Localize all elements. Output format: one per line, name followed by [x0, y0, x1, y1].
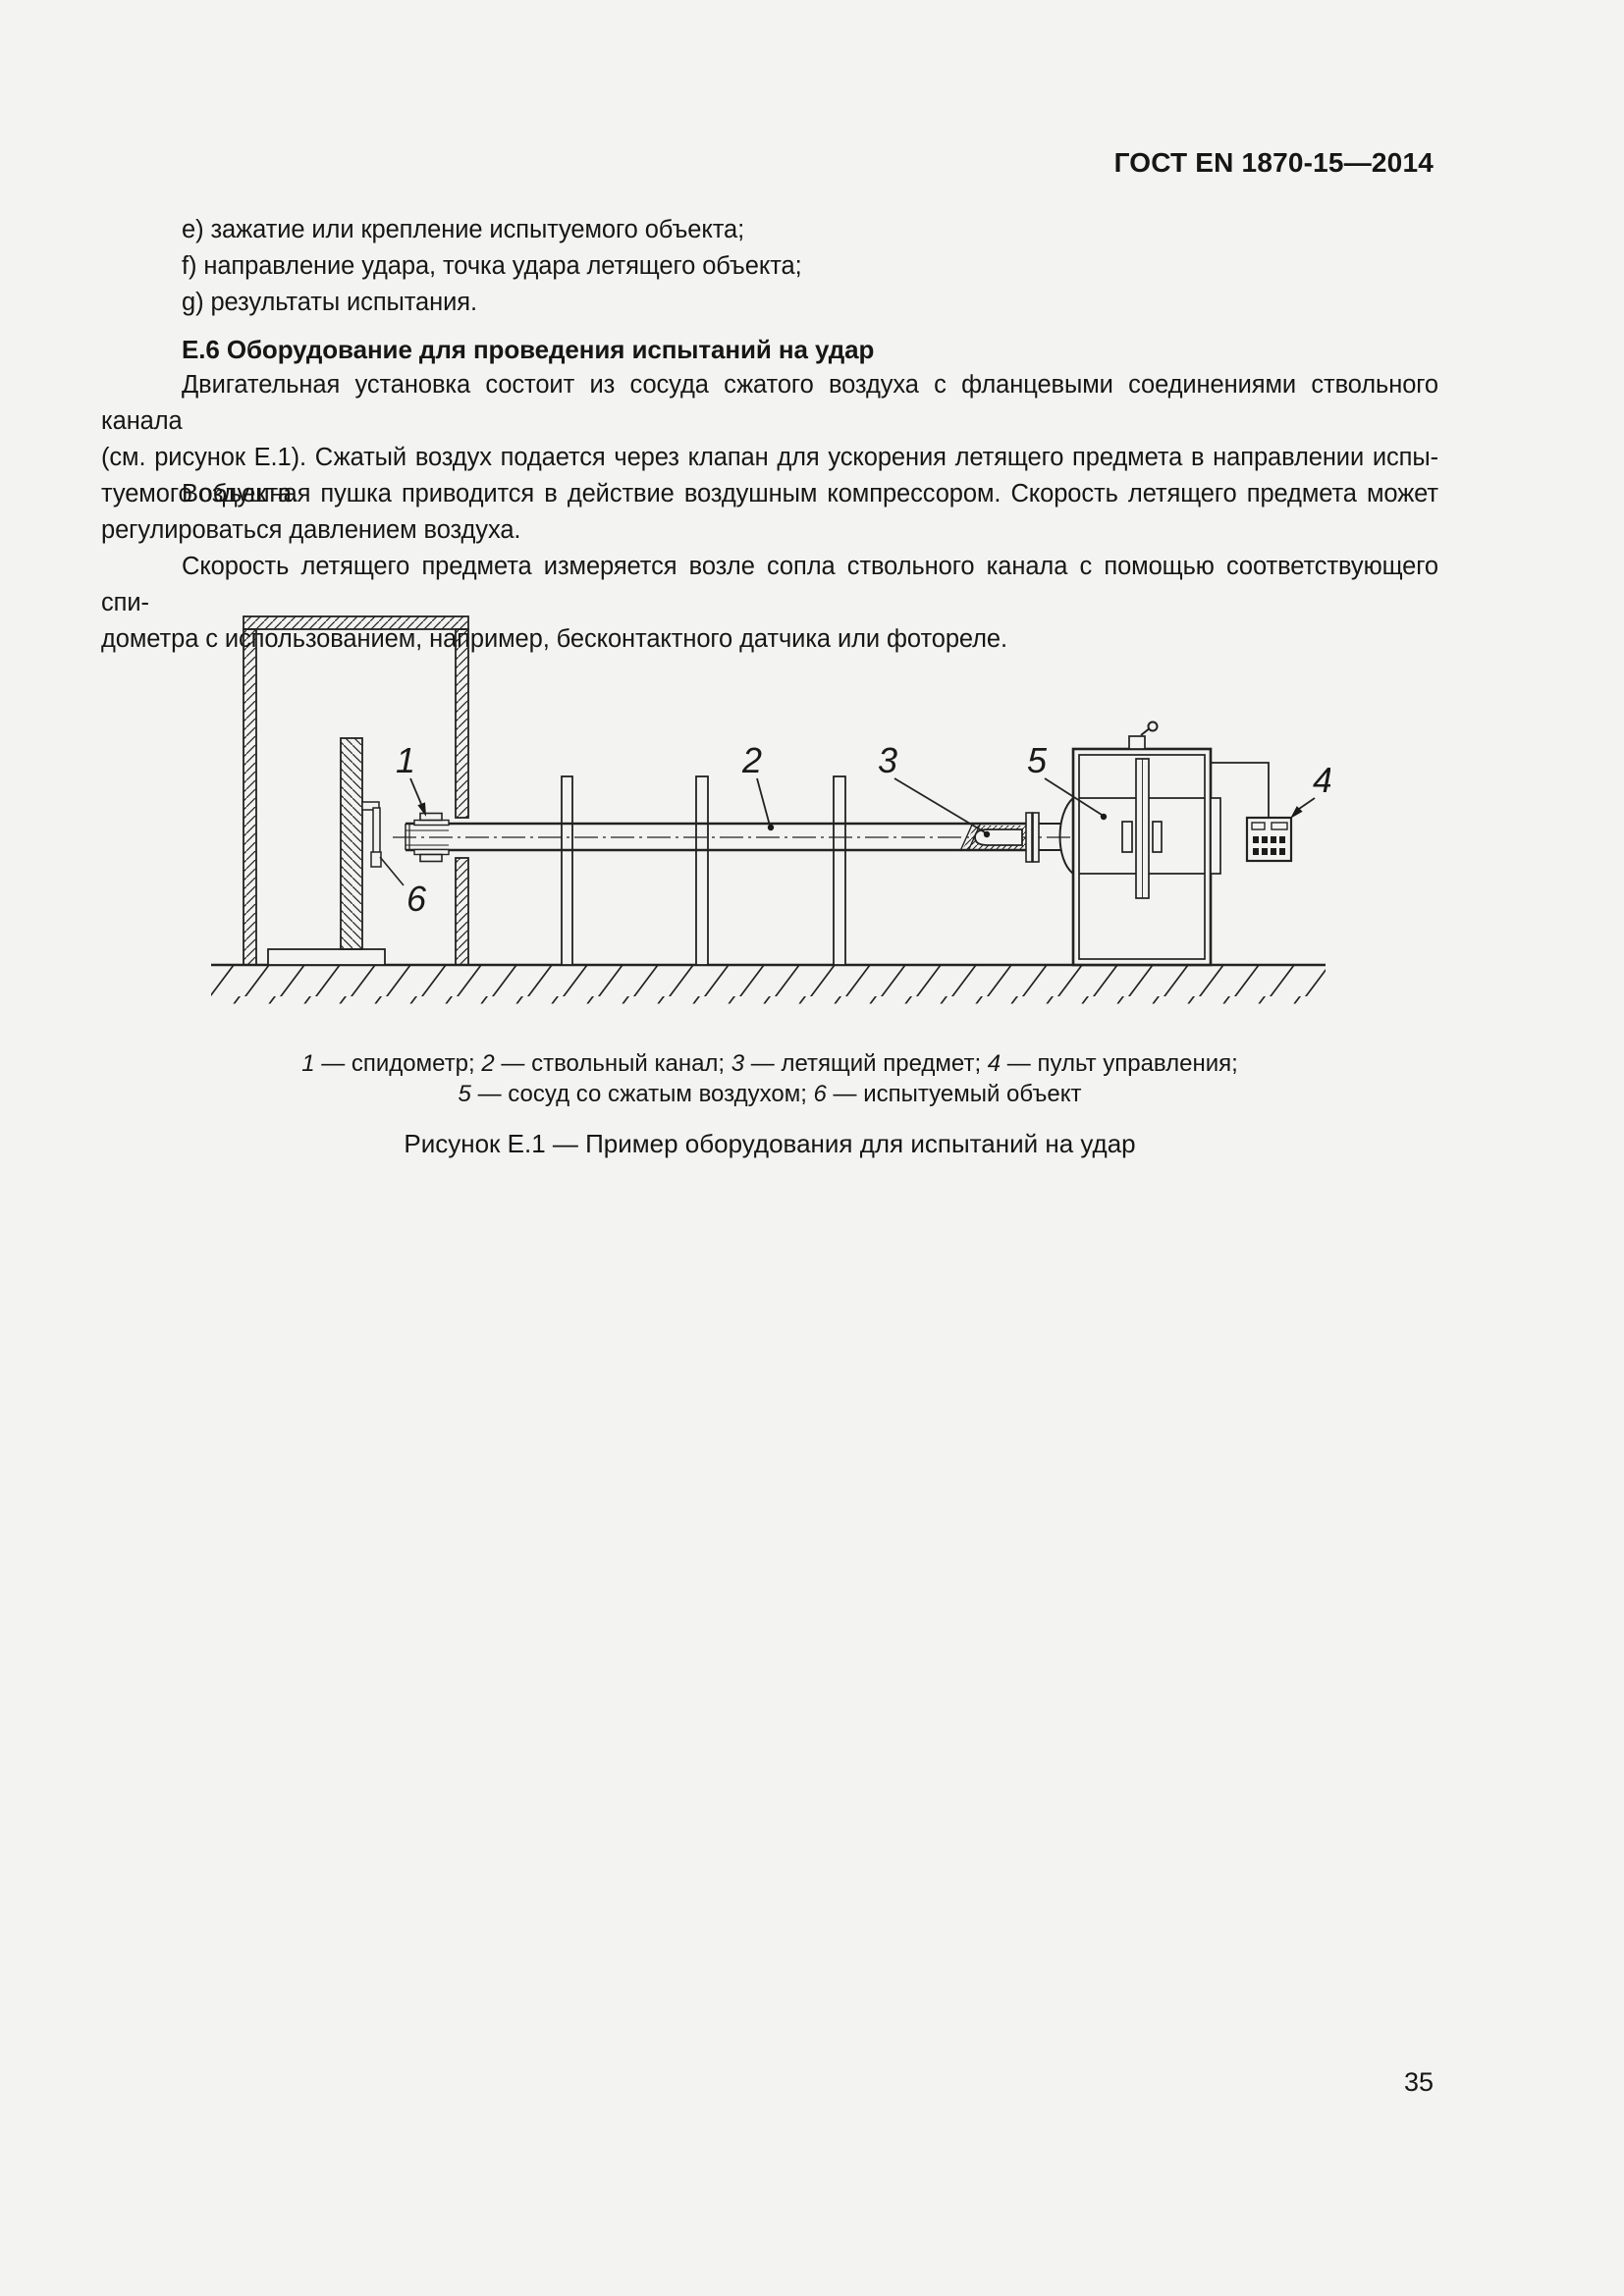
legend-text: — летящий предмет; — [744, 1050, 988, 1077]
ground — [211, 965, 1326, 1004]
document-page: ГОСТ EN 1870-15—2014 e) зажатие или креп… — [0, 0, 1624, 2296]
legend-text: — пульт управления; — [1001, 1050, 1238, 1077]
paragraph-line: Воздушная пушка приводится в действие во… — [101, 476, 1438, 512]
test-object — [373, 808, 380, 854]
legend-number: 5 — [459, 1081, 471, 1107]
paragraph: Воздушная пушка приводится в действие во… — [101, 476, 1438, 549]
vessel-valve — [1129, 722, 1158, 750]
figure-caption: Рисунок Е.1 — Пример оборудования для ис… — [101, 1129, 1438, 1159]
list-item: e) зажатие или крепление испытуемого объ… — [101, 212, 1438, 248]
legend-number: 3 — [731, 1050, 744, 1077]
paragraph-line: Двигательная установка состоит из сосуда… — [101, 367, 1438, 440]
legend-text: — испытуемый объект — [827, 1081, 1082, 1107]
barrel-supports — [562, 776, 845, 965]
figure-label-6: 6 — [406, 879, 427, 919]
list-item: g) результаты испытания. — [101, 285, 1438, 321]
figure-label-3: 3 — [878, 740, 897, 780]
control-panel — [1247, 818, 1291, 861]
legend-number: 2 — [481, 1050, 494, 1077]
figure-legend-line: 5 — сосуд со сжатым воздухом; 6 — испыту… — [101, 1079, 1438, 1109]
page-number: 35 — [101, 2067, 1434, 2098]
legend-text: — сосуд со сжатым воздухом; — [471, 1081, 814, 1107]
projectile-cutaway — [960, 823, 1026, 851]
legend-number: 1 — [301, 1050, 314, 1077]
list-item: f) направление удара, точка удара летяще… — [101, 248, 1438, 285]
figure-label-5: 5 — [1027, 740, 1048, 780]
ordered-list: e) зажатие или крепление испытуемого объ… — [101, 212, 1438, 321]
section-heading: Е.6 Оборудование для проведения испытани… — [101, 332, 1519, 368]
figure-label-2: 2 — [741, 740, 762, 780]
vessel-end-cap — [1060, 798, 1074, 874]
legend-number: 4 — [988, 1050, 1001, 1077]
legend-text: — ствольный канал; — [495, 1050, 731, 1077]
legend-number: 6 — [814, 1081, 827, 1107]
figure-label-4: 4 — [1313, 760, 1330, 800]
air-vessel — [1060, 722, 1221, 966]
figure-label-1: 1 — [396, 740, 415, 780]
page-header: ГОСТ EN 1870-15—2014 — [101, 147, 1434, 179]
paragraph-line: регулироваться давлением воздуха. — [101, 512, 1438, 549]
figure-legend-line: 1 — спидометр; 2 — ствольный канал; 3 — … — [101, 1048, 1438, 1079]
legend-text: — спидометр; — [315, 1050, 482, 1077]
target-stand — [268, 738, 385, 965]
projectile — [975, 829, 1022, 845]
paragraph-line: (см. рисунок Е.1). Сжатый воздух подаетс… — [101, 440, 1438, 476]
figure-diagram: 1 2 3 5 4 6 — [211, 604, 1330, 1011]
barrel — [406, 824, 1026, 850]
